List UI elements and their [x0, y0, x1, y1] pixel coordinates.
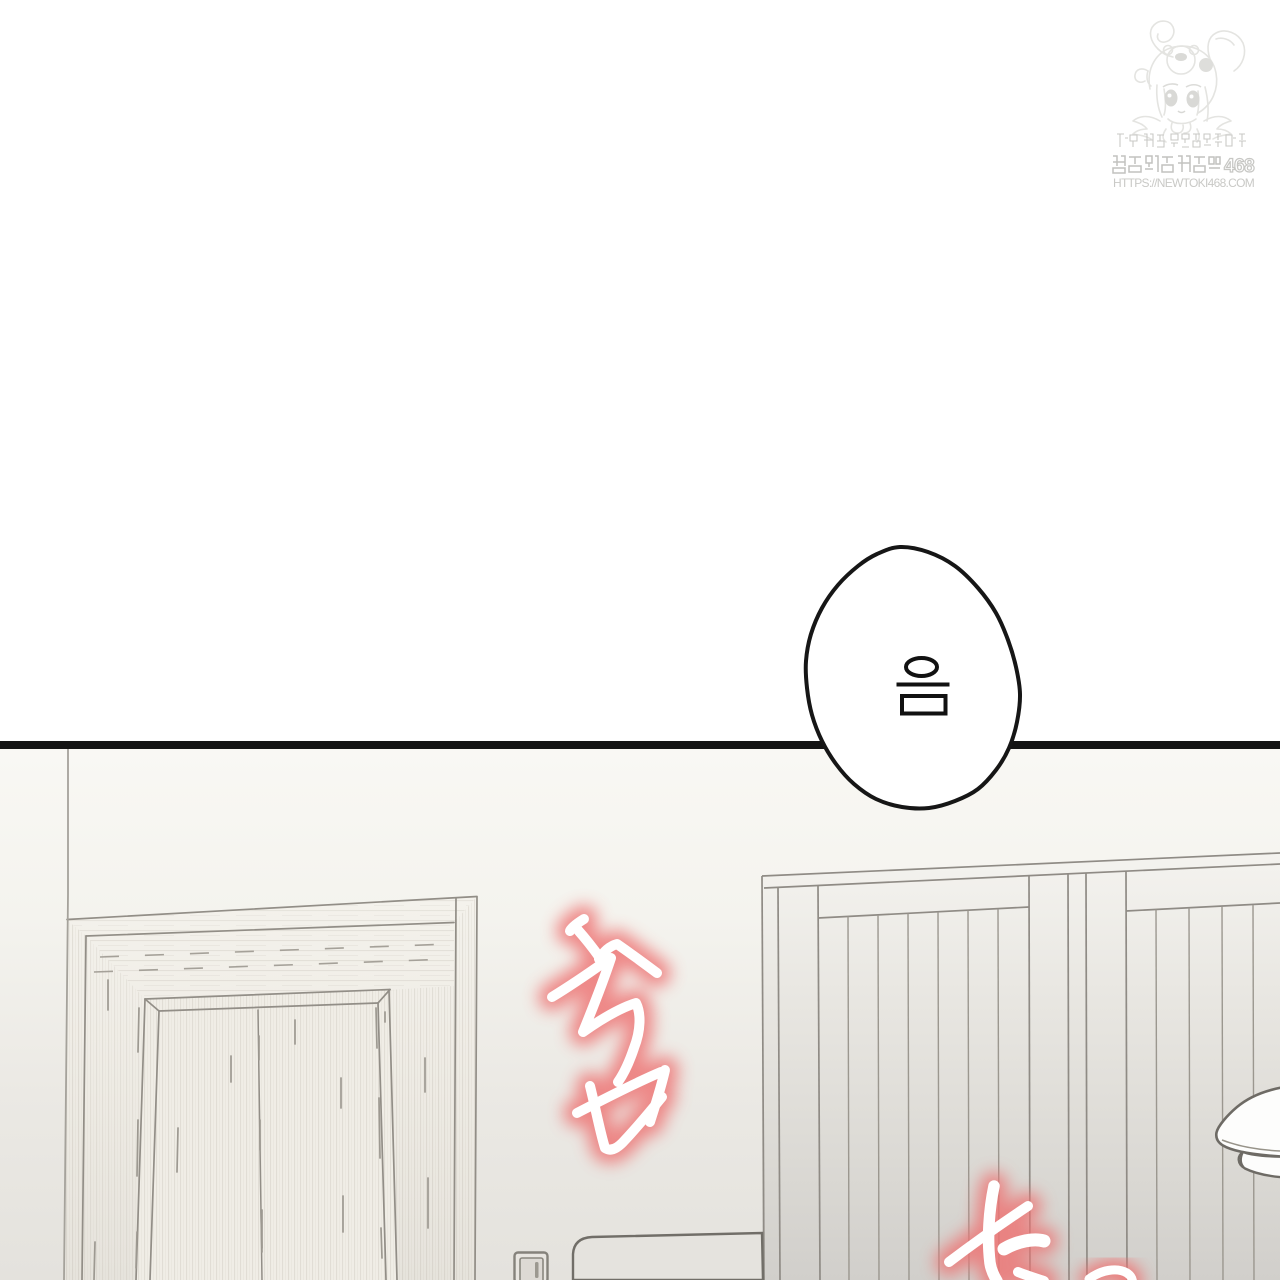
svg-text:468: 468 [1224, 156, 1254, 177]
svg-text:HTTPS://NEWTOKI468.COM: HTTPS://NEWTOKI468.COM [1113, 176, 1255, 190]
